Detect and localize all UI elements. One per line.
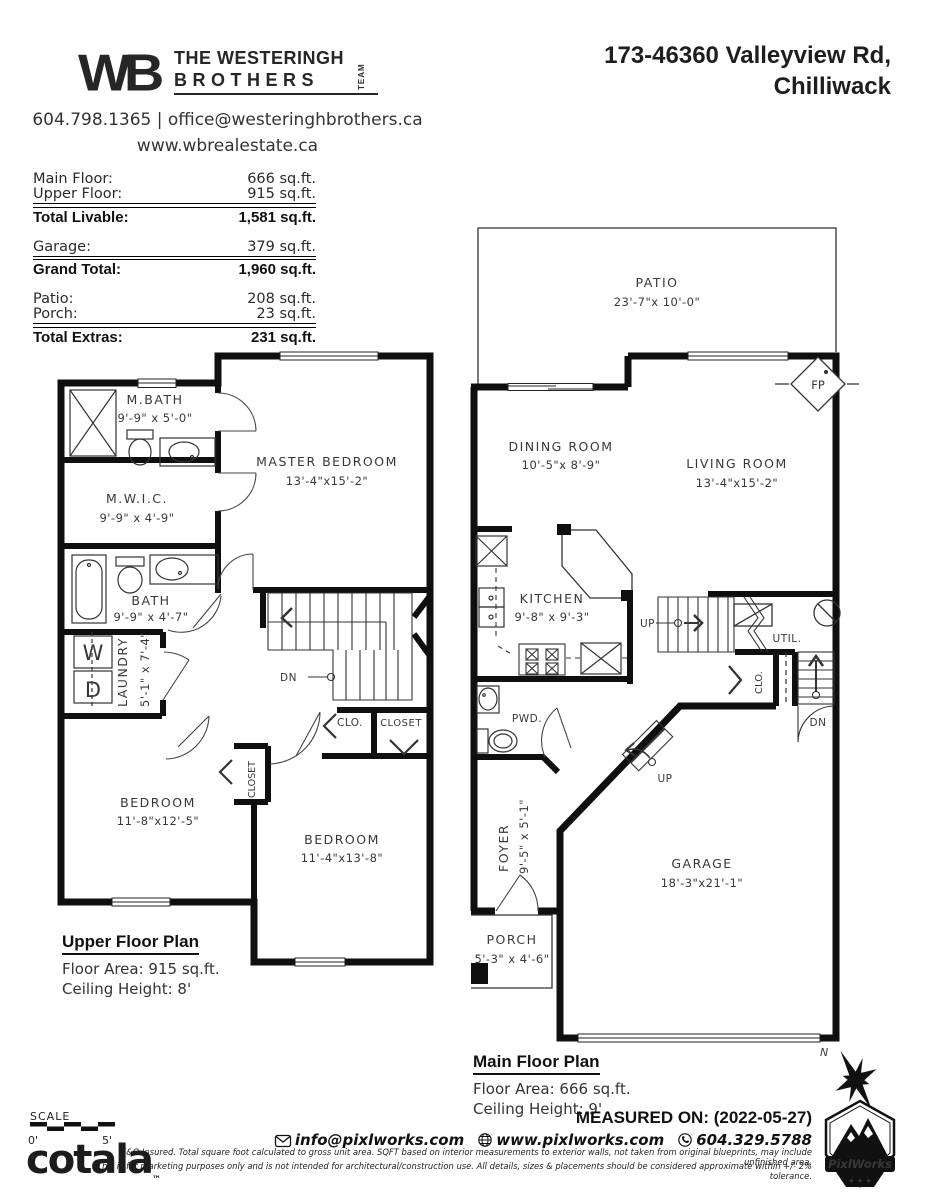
room-label: GARAGE xyxy=(671,856,732,871)
door-swing xyxy=(163,393,320,764)
row-label: Patio: xyxy=(33,292,73,307)
room-dims: 23'-7"x 10'-0" xyxy=(614,295,701,309)
table-row: Patio:208 sq.ft. xyxy=(33,292,316,307)
room-dims: 9'-8" x 9'-3" xyxy=(514,610,589,624)
sink xyxy=(150,555,218,584)
room-dims: 5'-3" x 4'-6" xyxy=(474,952,549,966)
room-dims: 5'-1" x 7'-4" xyxy=(138,632,152,707)
brand-underline xyxy=(174,93,378,95)
shower xyxy=(70,390,116,456)
plan-title: Upper Floor Plan xyxy=(62,932,220,955)
closet-label: CLOSET xyxy=(247,761,258,798)
scale-start: 0' xyxy=(28,1134,38,1147)
room-label: DINING ROOM xyxy=(508,439,613,454)
table-row: Garage:379 sq.ft. xyxy=(33,240,316,255)
room-label: PATIO xyxy=(636,275,679,290)
pwd-label: PWD. xyxy=(512,713,542,725)
closet-label: CLO. xyxy=(754,671,765,694)
table-total-row: Total Livable:1,581 sq.ft. xyxy=(33,209,316,226)
row-label: Upper Floor: xyxy=(33,187,122,202)
plan-title: Main Floor Plan xyxy=(473,1052,631,1075)
room-dims: 9'-5" x 5'-1" xyxy=(517,799,531,874)
trademark: ™ xyxy=(152,1175,161,1185)
measured-on: MEASURED ON: (2022-05-27) xyxy=(576,1108,812,1128)
room-label: BEDROOM xyxy=(120,795,196,810)
total-label: Total Livable: xyxy=(33,209,129,226)
room-label: KITCHEN xyxy=(520,591,585,606)
total-label: Total Extras: xyxy=(33,329,123,346)
row-value: 208 sq.ft. xyxy=(247,292,316,307)
table-rule xyxy=(33,256,316,261)
room-dims: 13'-4"x15'-2" xyxy=(696,476,778,490)
compass-n-label: N xyxy=(820,1046,828,1059)
room-label: BEDROOM xyxy=(304,832,380,847)
row-label: Porch: xyxy=(33,307,78,322)
badge-stars: ★ ★ ★ xyxy=(848,1177,871,1185)
area-summary-table: Main Floor:666 sq.ft. Upper Floor:915 sq… xyxy=(33,172,316,346)
main-floor-plan: FP xyxy=(455,220,875,1065)
brand-team: TEAM xyxy=(357,50,366,90)
room-dims: 11'-4"x13'-8" xyxy=(301,851,383,865)
room-label: LIVING ROOM xyxy=(686,456,788,471)
dn-label: DN xyxy=(280,672,297,684)
plan-floor-area: Floor Area: 915 sq.ft. xyxy=(62,959,220,979)
closet-label: CLOSET xyxy=(380,718,422,729)
dryer-label: D xyxy=(85,678,101,702)
table-rule xyxy=(33,323,316,328)
entry-steps xyxy=(623,721,673,771)
room-label: BATH xyxy=(131,593,170,608)
room-dims: 9'-9" x 5'-0" xyxy=(117,411,192,425)
total-value: 231 sq.ft. xyxy=(251,329,316,346)
util-label: UTIL. xyxy=(773,633,802,645)
closet-door-chevron xyxy=(729,666,741,694)
room-dims: 10'-5"x 8'-9" xyxy=(522,458,601,472)
pixlworks-badge: PixlWorks ★ ★ ★ xyxy=(818,1098,902,1190)
fireplace-label: FP xyxy=(811,378,825,392)
fridge xyxy=(476,536,507,566)
property-address: 173-46360 Valleyview Rd, Chilliwack xyxy=(604,40,891,102)
contact-line: 604.798.1365 | office@westeringhbrothers… xyxy=(0,110,455,130)
address-line1: 173-46360 Valleyview Rd, xyxy=(604,40,891,71)
toilet xyxy=(477,729,517,753)
kitchen-sink xyxy=(581,643,621,674)
address-line2: Chilliwack xyxy=(604,71,891,102)
up-label: UP xyxy=(640,618,655,630)
table-row: Main Floor:666 sq.ft. xyxy=(33,172,316,187)
row-label: Main Floor: xyxy=(33,172,113,187)
website-line: www.wbrealestate.ca xyxy=(0,136,455,156)
table-rule xyxy=(33,203,316,208)
total-label: Grand Total: xyxy=(33,261,121,278)
bathtub xyxy=(72,555,106,623)
room-dims: 13'-4"x15'-2" xyxy=(286,474,368,488)
brand-line2: BROTHERS xyxy=(174,70,344,91)
plan-floor-area: Floor Area: 666 sq.ft. xyxy=(473,1079,631,1099)
row-value: 379 sq.ft. xyxy=(247,240,316,255)
cotala-logo: cotala™ xyxy=(26,1140,161,1200)
washer-label: W xyxy=(83,641,104,665)
total-value: 1,960 sq.ft. xyxy=(238,261,316,278)
stove xyxy=(519,644,565,675)
table-row: Porch:23 sq.ft. xyxy=(33,307,316,322)
upper-plan-title-block: Upper Floor Plan Floor Area: 915 sq.ft. … xyxy=(62,932,220,999)
room-dims: 18'-3"x21'-1" xyxy=(661,876,743,890)
toilet xyxy=(116,557,144,593)
scale-end: 5' xyxy=(102,1134,112,1147)
brand-block: THE WESTERINGH BROTHERS xyxy=(174,48,344,91)
stairs-up xyxy=(656,597,768,652)
dn-label: DN xyxy=(810,717,827,729)
upper-floor-plan: M.BATH 9'-9" x 5'-0" MASTER BEDROOM 13'-… xyxy=(40,345,450,1010)
table-total-row: Total Extras:231 sq.ft. xyxy=(33,329,316,346)
room-label: LAUNDRY xyxy=(115,637,130,707)
table-total-row: Grand Total:1,960 sq.ft. xyxy=(33,261,316,278)
brand-line1: THE WESTERINGH xyxy=(174,48,344,69)
closet-label: CLO. xyxy=(337,717,363,729)
wb-logo-mark: WB xyxy=(78,43,157,103)
disclaimer-line2: This is for marketing purposes only and … xyxy=(92,1161,812,1181)
row-value: 915 sq.ft. xyxy=(247,187,316,202)
total-value: 1,581 sq.ft. xyxy=(238,209,316,226)
wall-oven xyxy=(479,588,504,627)
badge-label: PixlWorks xyxy=(828,1157,892,1171)
room-label: PORCH xyxy=(486,932,537,947)
scale-bar xyxy=(30,1122,118,1132)
corner-pantry xyxy=(557,524,633,601)
room-dims: 9'-9" x 4'-7" xyxy=(113,610,188,624)
room-label: M.BATH xyxy=(127,392,184,407)
row-value: 666 sq.ft. xyxy=(247,172,316,187)
room-dims: 9'-9" x 4'-9" xyxy=(99,511,174,525)
table-row: Upper Floor:915 sq.ft. xyxy=(33,187,316,202)
row-value: 23 sq.ft. xyxy=(256,307,316,322)
up-label: UP xyxy=(657,773,672,785)
room-label: FOYER xyxy=(496,824,511,872)
plan-ceiling-height: Ceiling Height: 8' xyxy=(62,979,220,999)
room-label: M.W.I.C. xyxy=(106,491,168,506)
row-label: Garage: xyxy=(33,240,91,255)
floorplan-sheet: { "colors": {"wall": "#0f0f0f", "ink": "… xyxy=(0,0,927,1200)
room-label: MASTER BEDROOM xyxy=(256,454,398,469)
utility-equipment xyxy=(734,600,840,626)
room-dims: 11'-8"x12'-5" xyxy=(117,814,199,828)
sink xyxy=(477,686,499,713)
